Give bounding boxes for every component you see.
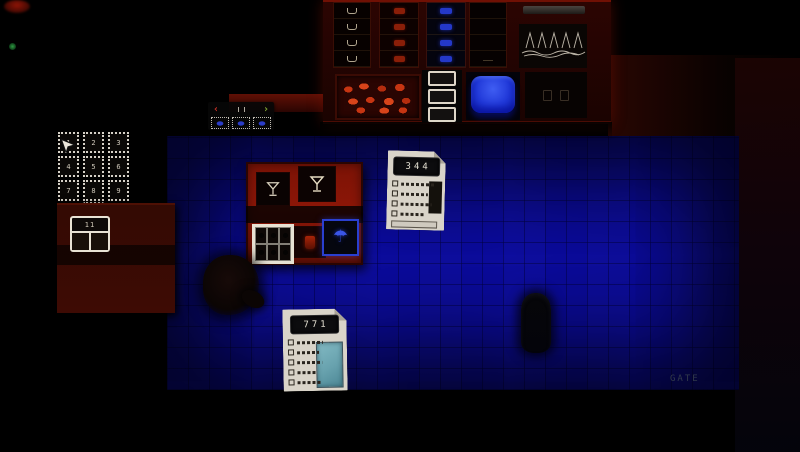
right-wall-band (735, 58, 800, 452)
bottle-shelf (427, 51, 465, 67)
shelf-item (470, 51, 506, 67)
checkbox-icon (392, 180, 398, 186)
checkbox-icon (288, 349, 294, 355)
crate-grid-icon (255, 227, 291, 261)
red-bottle-cabinet[interactable] (379, 2, 419, 68)
selector-slot[interactable] (211, 117, 229, 129)
ticket-checklist (391, 180, 438, 228)
tray-icon (428, 71, 456, 86)
character-standing[interactable] (521, 293, 551, 353)
desk-card-label: 11 (72, 218, 108, 233)
dark-storage-box[interactable] (525, 72, 587, 118)
cocktail-glass-station[interactable] (298, 166, 336, 202)
ticket-checklist (288, 339, 324, 386)
red-drink-icon (305, 236, 315, 249)
glass-shelf (334, 51, 370, 67)
bottle-shelf (427, 35, 465, 51)
selector-slots (211, 117, 271, 129)
glass-shelf (334, 35, 370, 51)
keypad-key-9[interactable]: 9 (108, 180, 129, 201)
red-bottle-icon (394, 56, 405, 62)
keypad-key-5[interactable]: 5 (83, 156, 104, 177)
order-ticket-771[interactable]: 771 (282, 308, 347, 391)
faint-item-icon (483, 56, 493, 61)
blue-bottle-cabinet[interactable] (426, 2, 466, 68)
red-bottle-icon (394, 40, 405, 46)
glass-icon (347, 56, 357, 62)
bottle-shelf (380, 35, 418, 51)
glass-icon (347, 24, 357, 30)
glass-shelf (334, 19, 370, 35)
blue-bottle-icon (440, 40, 452, 46)
martini-glass-icon (264, 180, 282, 198)
glass-icon (347, 40, 357, 46)
selector-slot[interactable] (232, 117, 250, 129)
signature-line (391, 220, 437, 228)
keypad-key-8[interactable]: 8 (83, 180, 104, 201)
keypad-key-7[interactable]: 7 (58, 180, 79, 201)
character-crouched[interactable] (203, 255, 259, 315)
desk-card[interactable]: 11 (70, 216, 110, 252)
item-selector-widget: ‹ › (208, 102, 274, 130)
rack-shelf-board (523, 6, 585, 14)
checkbox-icon (288, 339, 294, 345)
red-bottle-icon (394, 24, 405, 30)
keypad-key-2[interactable]: 2 (83, 132, 104, 153)
dark-cabinet[interactable] (469, 2, 507, 68)
checkbox-icon (289, 379, 295, 385)
blue-bottle-icon (440, 56, 452, 62)
ticket-number-display: 344 (394, 157, 439, 175)
glass-shelf (334, 3, 370, 19)
blue-ice-tub[interactable] (471, 76, 515, 113)
selector-slot[interactable] (253, 117, 271, 129)
blue-bottle-icon (440, 24, 452, 30)
keypad-key-4[interactable]: 4 (58, 156, 79, 177)
glassware-cabinet[interactable] (333, 2, 371, 68)
desk-card-cells (72, 233, 108, 250)
bottle-shelf (380, 3, 418, 19)
selector-ticks (238, 107, 245, 112)
ticket-number-display: 771 (291, 316, 338, 334)
bottle-shelf (380, 51, 418, 67)
checkbox-icon (392, 190, 398, 196)
stacked-trays[interactable] (422, 70, 462, 122)
martini-glass-icon (307, 174, 327, 194)
bottle-shelf (380, 19, 418, 35)
checkbox-icon (391, 210, 397, 216)
prev-arrow-button[interactable]: ‹ (213, 105, 219, 115)
umbrella-icon: ☂ (333, 229, 348, 246)
empty-shelf (470, 19, 506, 35)
tray-icon (428, 89, 456, 104)
bottle-shelf (427, 3, 465, 19)
red-food-tray[interactable] (335, 74, 421, 120)
keypad-key-3[interactable]: 3 (108, 132, 129, 153)
checkbox-icon (392, 200, 398, 206)
bottle-shelf (427, 19, 465, 35)
hanging-glasses-icon (519, 24, 587, 68)
next-arrow-button[interactable]: › (263, 105, 269, 115)
glass-icon (347, 8, 357, 14)
umbrella-garnish-station[interactable]: ☂ (322, 219, 359, 256)
faint-mark (543, 90, 552, 101)
food-items (339, 78, 417, 116)
green-indicator-light (9, 43, 16, 50)
red-glow-light (4, 0, 30, 13)
blue-bottle-icon (440, 8, 452, 14)
bottle-crate-station[interactable] (252, 224, 294, 264)
hanging-glass-rack[interactable] (519, 24, 587, 68)
checkbox-icon (288, 369, 294, 375)
mouse-cursor-icon (60, 138, 76, 154)
floor-sign-label: GATE (670, 371, 726, 387)
ice-tub-pad (466, 72, 520, 120)
red-bottle-icon (394, 8, 405, 14)
faint-mark (560, 90, 569, 101)
keypad-key-6[interactable]: 6 (108, 156, 129, 177)
shelf-shadow (320, 122, 612, 139)
empty-shelf (470, 35, 506, 51)
tray-icon (428, 107, 456, 122)
selector-controls: ‹ › (208, 103, 274, 116)
checkbox-icon (288, 359, 294, 365)
order-ticket-344[interactable]: 344 (386, 150, 446, 230)
cocktail-glass-station[interactable] (256, 172, 290, 206)
red-prep-table: ☂ (246, 162, 363, 265)
back-bar-shelves (323, 0, 611, 124)
empty-shelf (470, 3, 506, 19)
